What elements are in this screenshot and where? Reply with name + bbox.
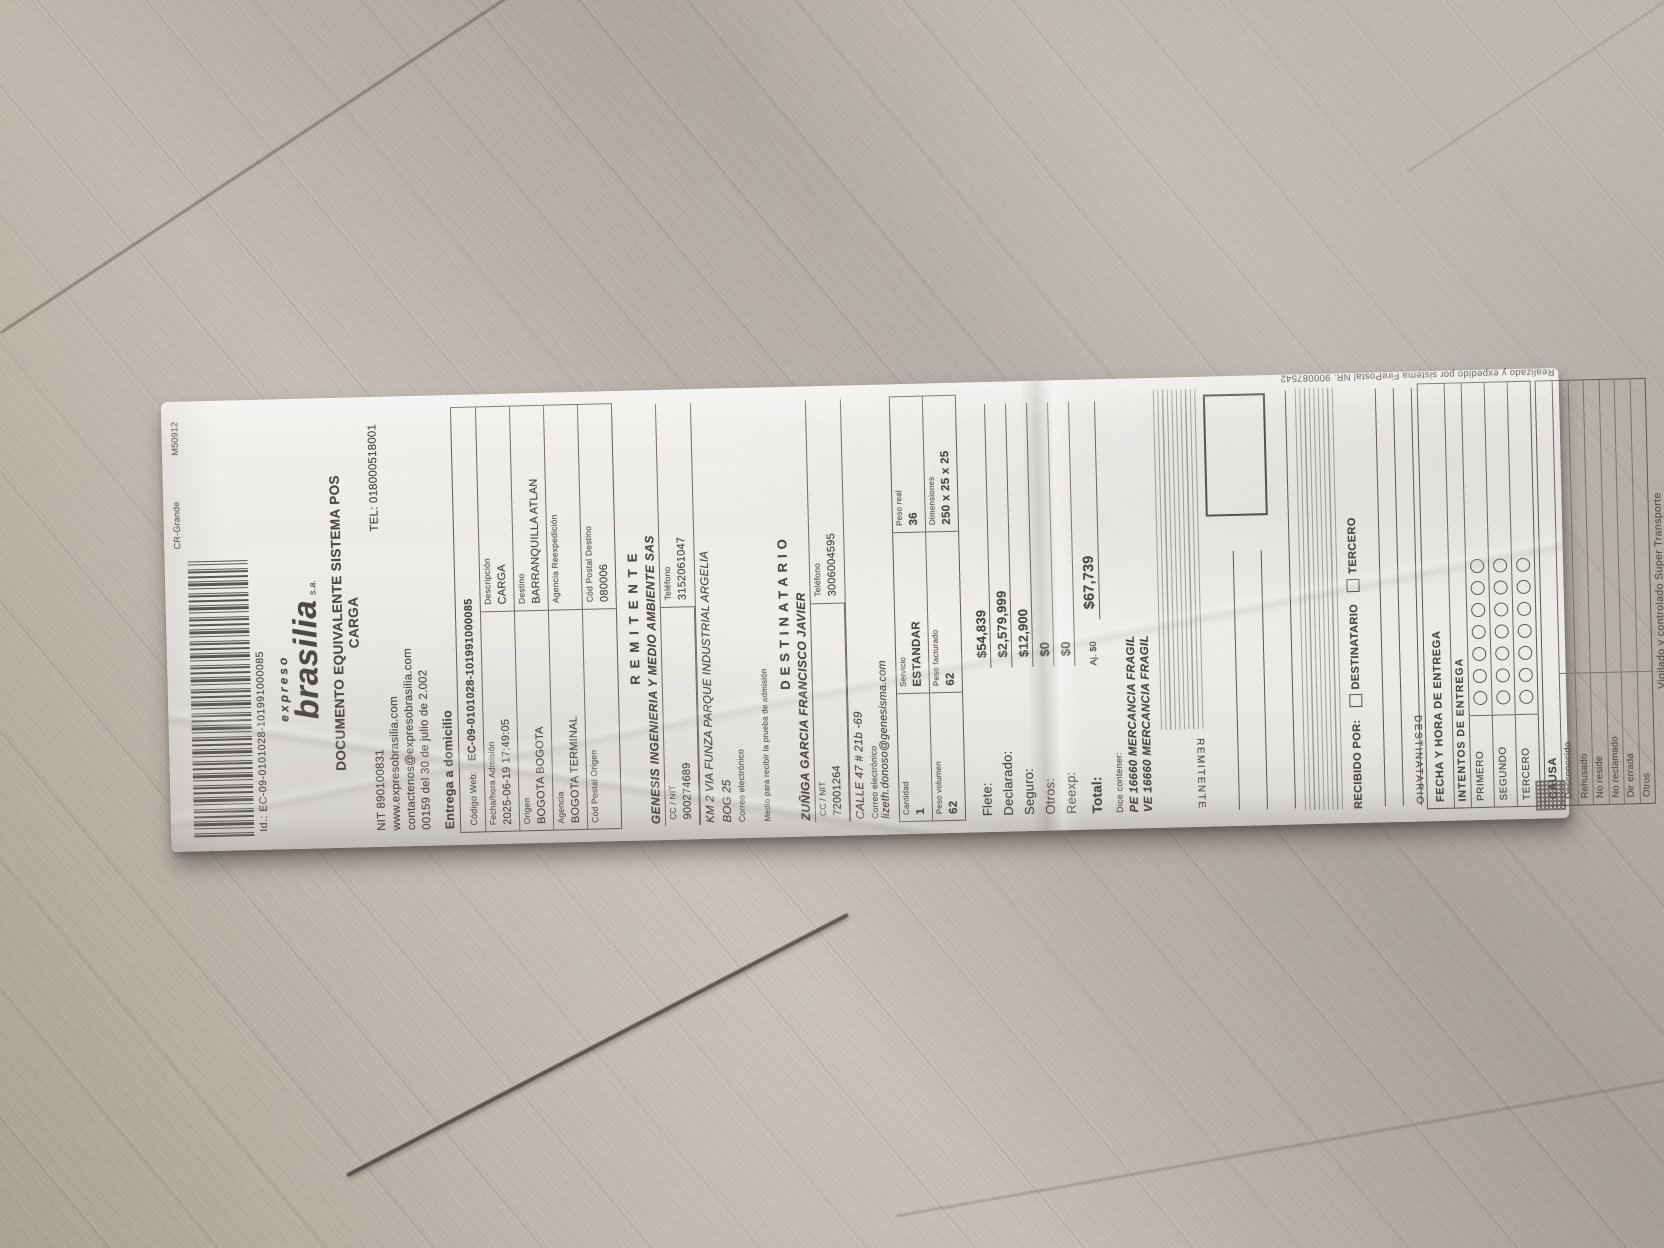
signature-line <box>1285 391 1296 809</box>
attempt-circle <box>1470 581 1484 595</box>
remitente-id: CC / NIT 900274689 <box>661 606 700 826</box>
field-descripcion: Descripción CARGA <box>476 407 515 611</box>
option-tercero: TERCERO <box>1345 517 1360 592</box>
attempt-circle <box>1471 603 1485 617</box>
stamp-box <box>1203 393 1268 516</box>
admission-info-table: Código Web: EC-09-0101028-101991000085 F… <box>450 403 622 833</box>
attempt-circle <box>1516 580 1530 594</box>
field-dimensiones: Dimensiones 250 x 25 x 25 <box>923 396 958 532</box>
codigo-web-value: EC-09-0101028-101991000085 <box>463 598 479 761</box>
field-peso-real: Peso real 36 <box>890 397 925 533</box>
field-cod-postal-origen: Cód Postal Origen <box>583 608 621 829</box>
field-servicio: Servicio ESTANDAR <box>893 532 929 694</box>
option-destinatario: DESTINATARIO <box>1347 604 1363 708</box>
attempt-circle <box>1519 690 1533 704</box>
signature-line <box>1261 550 1268 809</box>
destinatario-signature-label: DESTINATARIO <box>1412 715 1425 806</box>
printer-id: CR-Grande <box>171 501 182 549</box>
field-peso-volumen: Peso volumen 62 <box>930 692 965 820</box>
terms-fineprint-a: REMITENTE <box>1153 389 1207 816</box>
signature-line <box>1233 551 1240 810</box>
attempt-circle <box>1495 624 1509 638</box>
contents-block: Dice contener: PE 16660 MERCANCIA FRAGIL… <box>1100 388 1156 813</box>
total-value: $67,739 <box>1077 401 1100 619</box>
package-table: Cantidad 1 Servicio ESTANDAR Peso real 3… <box>889 395 966 823</box>
fineprint-lines <box>1153 389 1205 730</box>
causa-table: CAUSA Desconocido Rehusado No reside No … <box>1535 378 1656 807</box>
signature-line <box>1393 388 1404 806</box>
attempt-circle <box>1473 691 1487 705</box>
logo-brasilia: brasilia <box>286 599 326 719</box>
field-fecha-admision: Fecha/hora Admisión 2025-06-19 17:49:05 <box>481 610 520 831</box>
destinatario-block: ZUÑIGA GARCIA FRANCISCO JAVIER CC / NIT … <box>789 399 893 823</box>
remitente-signature-area <box>1203 391 1297 811</box>
field-cod-postal-destino: Cód Postal Destino 080006 <box>578 404 616 608</box>
company-tel: TEL: 018000518001 <box>365 424 383 532</box>
recibido-por-label: RECIBIDO POR: <box>1350 719 1364 809</box>
delivery-attempts-table: FECHA Y HORA DE ENTREGA INTENTOS DE ENTR… <box>1417 381 1541 810</box>
attempt-circle <box>1518 646 1532 660</box>
datamatrix-code <box>1535 780 1566 811</box>
attempt-circle <box>1517 602 1531 616</box>
company-logo: expreso brasilia s.a. <box>271 434 330 865</box>
attempt-circle <box>1473 669 1487 683</box>
document-title: DOCUMENTO EQUIVALENTE SISTEMA POS CARGA <box>325 407 367 838</box>
attempt-circle <box>1495 646 1509 660</box>
destinatario-signature-area: DESTINATARIO <box>1359 388 1421 807</box>
charges-block: Flete: $54,839 Declarado: $2,579,999 Seg… <box>964 401 1105 816</box>
machine-id: M50912 <box>169 422 180 456</box>
codigo-web-label: Código Web: <box>468 771 479 825</box>
destinatario-id: CC / NIT 72001264 <box>811 602 850 822</box>
remitente-phone: Teléfono 3152061047 <box>656 403 695 606</box>
attempt-circle <box>1494 602 1508 616</box>
field-agencia-reexpedicion: Agencia Reexpedición <box>544 405 583 609</box>
attempt-circle <box>1496 668 1510 682</box>
attempt-circle <box>1472 625 1486 639</box>
attempt-circle <box>1496 690 1510 704</box>
remitente-signature-label: REMITENTE <box>1194 733 1207 815</box>
attempt-circle <box>1472 647 1486 661</box>
printer-info-line: CR-Grande M50912 <box>169 422 189 842</box>
terms-fineprint-b <box>1295 387 1345 810</box>
attempt-circle <box>1470 559 1484 573</box>
destinatario-checkbox <box>1349 694 1362 707</box>
attempt-circle <box>1518 624 1532 638</box>
attempt-circle <box>1493 580 1507 594</box>
tercero-checkbox <box>1346 579 1359 592</box>
signature-line <box>1375 388 1386 806</box>
attempt-circle <box>1493 558 1507 572</box>
destinatario-phone: Teléfono 3006004595 <box>806 400 845 603</box>
attempt-circle <box>1516 558 1530 572</box>
shipment-barcode <box>188 560 255 837</box>
contents-label: Dice contener: <box>1114 752 1125 813</box>
receipt-paper: CR-Grande M50912 Id.: EC-09-0101028-1019… <box>161 368 1570 852</box>
remitente-block: GENESIS INGENIERIA Y MEDIO AMBIENTE SAS … <box>639 401 772 826</box>
company-contact-block: NIT 890100831 TEL: 018000518001 www.expr… <box>365 406 435 831</box>
logo-suffix: s.a. <box>307 580 317 596</box>
field-origen: Origen BOGOTA BOGOTA <box>515 609 554 830</box>
field-peso-facturado: Peso facturado 62 <box>926 531 962 693</box>
field-destino: Destino BARRANQUILLA ATLAN <box>510 406 549 610</box>
field-agencia: Agencia BOGOTA TERMINAL <box>549 608 588 829</box>
field-cantidad: Cantidad 1 <box>897 693 932 821</box>
total-adjust: Aj. $0 <box>1088 641 1099 665</box>
attempt-circle <box>1519 668 1533 682</box>
photo-of-shipping-receipt: CR-Grande M50912 Id.: EC-09-0101028-1019… <box>0 0 1664 1248</box>
